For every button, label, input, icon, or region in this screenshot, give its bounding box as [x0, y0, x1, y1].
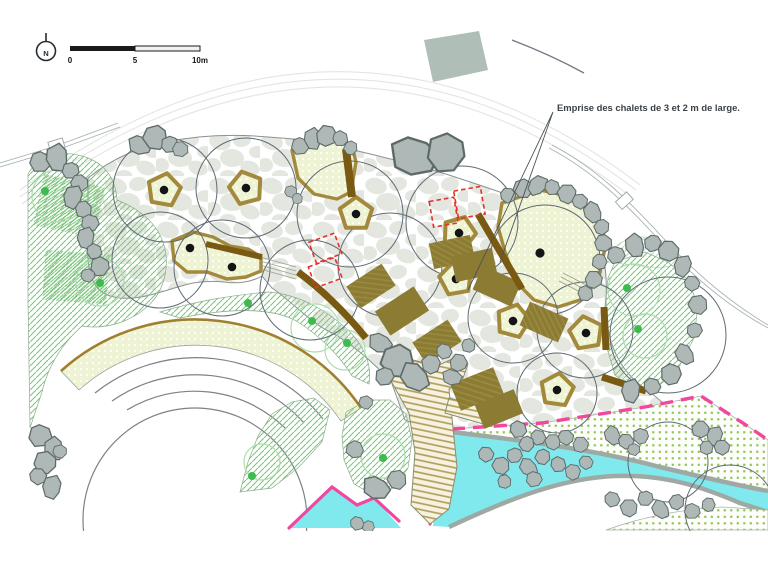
- site-plan-page: Emprise des chalets de 3 et 2 m de large…: [0, 0, 768, 567]
- path-curve-topright: [512, 40, 584, 73]
- scale-tick-10m: 10m: [192, 56, 208, 65]
- fence-node: [615, 192, 633, 209]
- north-arrow: N: [37, 33, 56, 61]
- scale-tick-0: 0: [68, 56, 73, 65]
- scale-tick-5: 5: [133, 56, 138, 65]
- tree-point: [41, 187, 49, 195]
- annotation-label: Emprise des chalets de 3 et 2 m de large…: [557, 102, 740, 113]
- tree-point: [96, 279, 104, 287]
- site-plan-svg: Emprise des chalets de 3 et 2 m de large…: [0, 0, 768, 567]
- tree-point: [308, 317, 316, 325]
- scale-bar: 0 5 10m: [68, 46, 208, 65]
- tree-point: [379, 454, 387, 462]
- north-label: N: [43, 49, 48, 58]
- tree-point: [343, 339, 351, 347]
- building-roof: [424, 31, 488, 82]
- page-margin-mask: [0, 531, 768, 567]
- tree-point: [634, 325, 642, 333]
- tree-point: [248, 472, 256, 480]
